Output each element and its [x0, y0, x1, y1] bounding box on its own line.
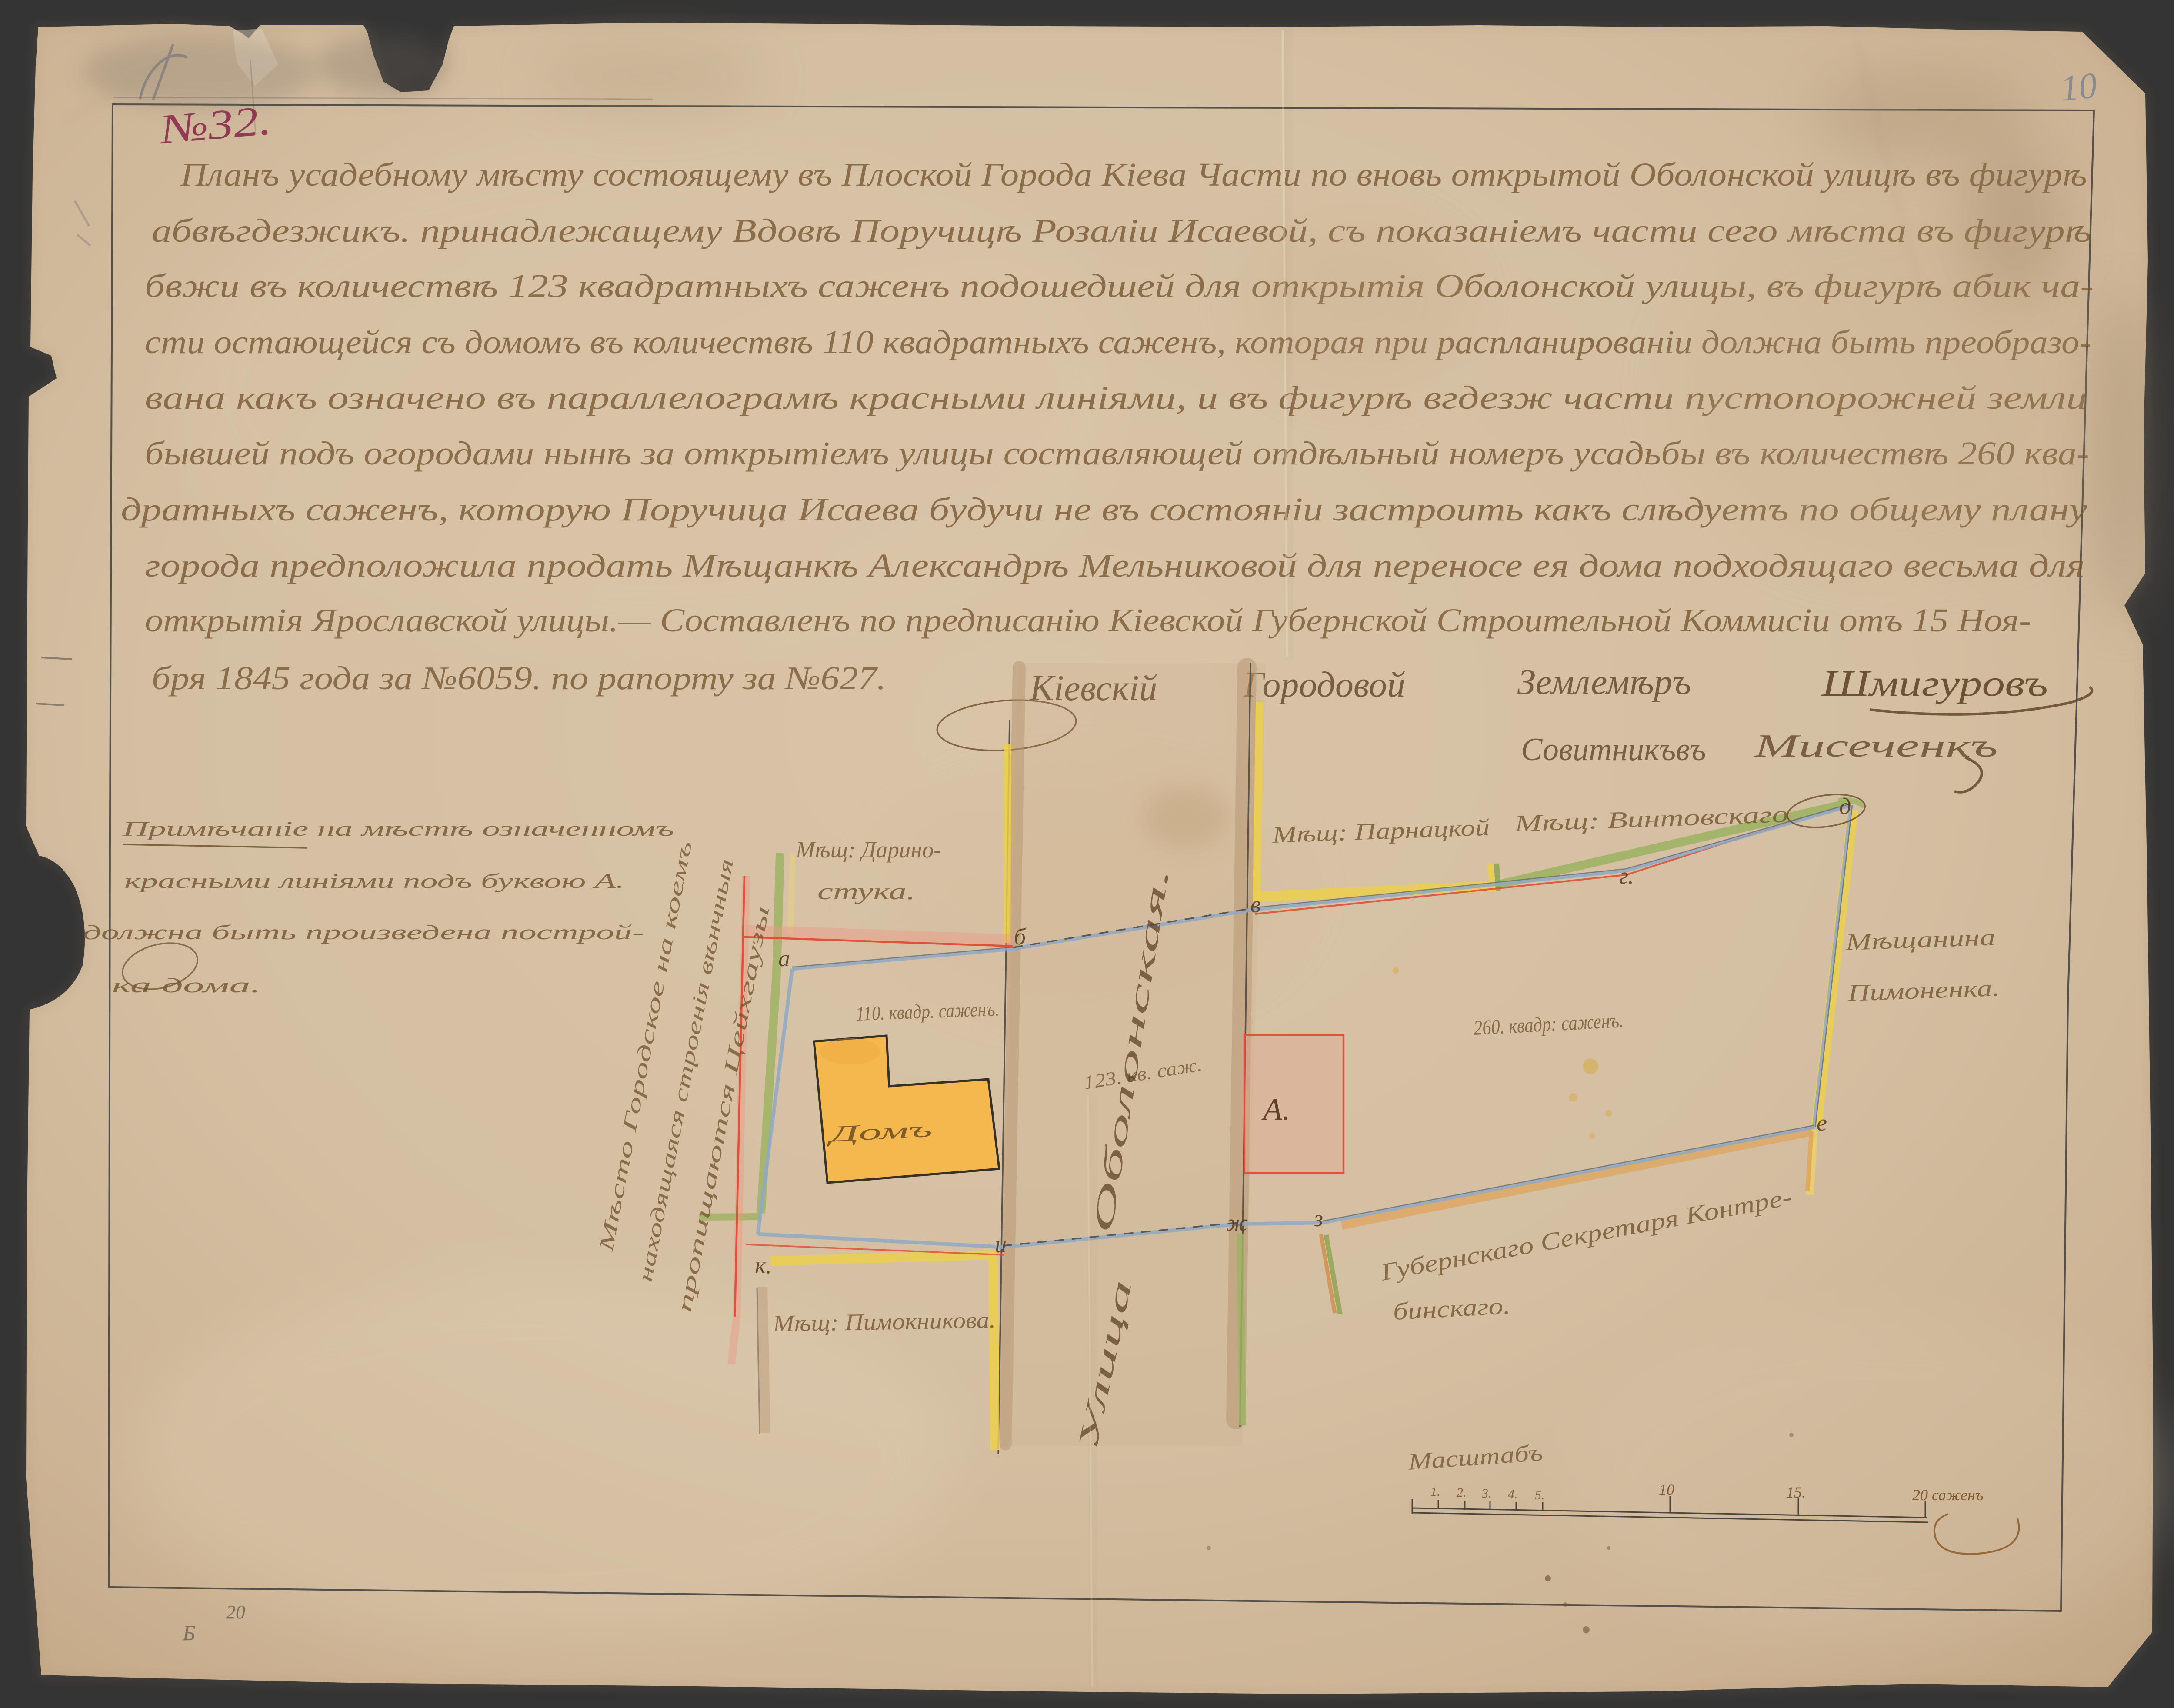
svg-text:г.: г.: [1619, 863, 1634, 889]
svg-text:1.: 1.: [1430, 1484, 1440, 1499]
svg-text:Мѣщ: Дарино-: Мѣщ: Дарино-: [795, 837, 941, 863]
svg-text:Мѣщанина: Мѣщанина: [1844, 924, 1996, 955]
svg-text:2.: 2.: [1457, 1485, 1467, 1500]
svg-text:Б: Б: [182, 1621, 196, 1645]
svg-text:Планъ усадебному мѣсту состоящ: Планъ усадебному мѣсту состоящему въ Пло…: [180, 157, 2087, 193]
svg-text:20: 20: [226, 1601, 245, 1623]
svg-text:е: е: [1817, 1110, 1827, 1136]
svg-text:к.: к.: [755, 1252, 772, 1278]
svg-text:Пимоненка.: Пимоненка.: [1847, 975, 2000, 1006]
svg-text:Городовой: Городовой: [1243, 664, 1405, 705]
svg-text:20 саженъ: 20 саженъ: [1912, 1486, 1984, 1504]
svg-text:Совитникъвъ: Совитникъвъ: [1521, 732, 1706, 767]
svg-text:открытія Ярославской улицы.— С: открытія Ярославской улицы.— Составленъ …: [145, 602, 2031, 639]
svg-text:и: и: [995, 1231, 1007, 1258]
svg-text:Примѣчаніе на мѣстѣ означенном: Примѣчаніе на мѣстѣ означенномъ: [122, 817, 674, 841]
svg-text:Мѣщ: Пимокникова.: Мѣщ: Пимокникова.: [772, 1307, 996, 1337]
svg-text:4.: 4.: [1508, 1487, 1518, 1501]
svg-text:Шмигуровъ: Шмигуровъ: [1821, 662, 2048, 704]
svg-text:красными линіями подъ буквою А: красными линіями подъ буквою А.: [124, 870, 624, 893]
svg-text:ж: ж: [1226, 1210, 1248, 1236]
svg-text:з: з: [1314, 1205, 1323, 1231]
svg-text:должна быть произведена постро: должна быть произведена построй-: [83, 921, 644, 944]
svg-text:стука.: стука.: [817, 878, 915, 904]
svg-text:б: б: [1014, 924, 1027, 950]
svg-text:бря 1845 года за №6059. по рап: бря 1845 года за №6059. по рапорту за №6…: [152, 660, 886, 697]
svg-text:15.: 15.: [1786, 1484, 1806, 1501]
svg-text:5.: 5.: [1535, 1488, 1545, 1502]
svg-text:10: 10: [2058, 65, 2099, 109]
svg-text:А.: А.: [1261, 1092, 1290, 1127]
svg-text:Землемѣръ: Землемѣръ: [1517, 662, 1691, 702]
svg-text:в: в: [1250, 891, 1260, 917]
svg-text:10: 10: [1659, 1481, 1674, 1498]
svg-text:д: д: [1839, 793, 1851, 819]
svg-text:Мисеченкъ: Мисеченкъ: [1754, 728, 1998, 764]
svg-text:3.: 3.: [1481, 1486, 1492, 1501]
svg-text:а: а: [778, 945, 790, 971]
